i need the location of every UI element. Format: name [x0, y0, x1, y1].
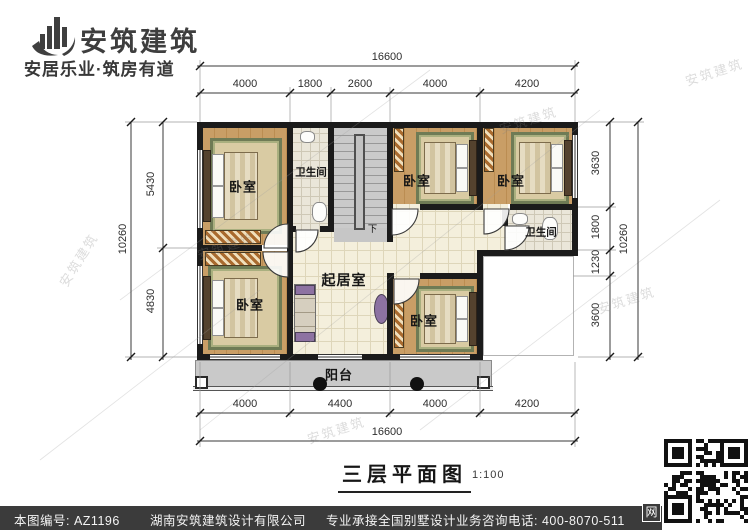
dim-top-seg-2: 1800 — [298, 78, 322, 90]
dim-bottom-seg-1: 4000 — [233, 398, 257, 410]
footer-company: 湖南安筑建筑设计有限公司 — [150, 510, 306, 529]
door-swing-arc — [392, 209, 418, 235]
dim-top-seg-4: 4000 — [423, 78, 447, 90]
dim-bottom-seg-3: 4000 — [423, 398, 447, 410]
qr-module — [708, 511, 712, 515]
qr-module — [696, 463, 700, 467]
qr-module — [732, 499, 736, 503]
door-swing-arc — [296, 230, 318, 252]
qr-module — [688, 487, 692, 491]
qr-module — [720, 519, 724, 523]
qr-module — [744, 463, 748, 467]
qr-module — [708, 519, 712, 523]
footer-phone: 咨询电话: 400-8070-511 — [482, 510, 625, 529]
dimension-and-door-overlay — [0, 0, 750, 530]
qr-module — [696, 519, 700, 523]
qr-module — [716, 511, 720, 515]
stair-down-label: 下 — [368, 221, 379, 235]
dim-left-seg-2: 4830 — [145, 271, 157, 331]
room-label-bathroom-1: 卫生间 — [295, 165, 327, 180]
dim-right-seg-3: 1230 — [590, 232, 602, 292]
dim-top-seg-5: 4200 — [515, 78, 539, 90]
qr-module — [744, 495, 748, 499]
footer-service: 专业承接全国别墅设计业务 — [326, 510, 482, 529]
room-label-bathroom-2: 卫生间 — [525, 225, 557, 240]
qr-code — [662, 436, 750, 530]
door-swing-arc — [264, 224, 288, 248]
qr-module — [680, 455, 684, 459]
drawing-scale: 1:100 — [472, 469, 505, 481]
qr-module — [744, 519, 748, 523]
qr-module — [680, 511, 684, 515]
room-label-bedroom-top-middle: 卧室 — [403, 171, 431, 190]
room-label-balcony: 阳台 — [325, 365, 353, 384]
dim-right-seg-1: 3630 — [590, 133, 602, 193]
dim-right-total: 10260 — [618, 209, 630, 269]
door-swing-arc — [394, 279, 419, 304]
qr-module — [736, 455, 740, 459]
room-label-bedroom-bottom-middle: 卧室 — [410, 311, 438, 330]
qr-module — [708, 451, 712, 455]
qr-module — [744, 511, 748, 515]
qr-module — [724, 475, 728, 479]
room-label-bedroom-top-left: 卧室 — [229, 177, 257, 196]
qr-module — [688, 463, 692, 467]
dim-bottom-total: 16600 — [372, 426, 403, 438]
drawing-title-text: 三层平面图 — [342, 464, 467, 486]
qr-module — [744, 487, 748, 491]
qr-module — [712, 463, 716, 467]
qr-module — [728, 503, 732, 507]
dim-bottom-seg-2: 4400 — [328, 398, 352, 410]
qr-module — [688, 519, 692, 523]
qr-module — [716, 491, 720, 495]
dim-left-seg-1: 5430 — [145, 154, 157, 214]
room-label-bedroom-top-right: 卧室 — [497, 171, 525, 190]
drawing-title: 三层平面图 — [338, 458, 471, 493]
qr-module — [724, 483, 728, 487]
drawing-sheet: 安筑建筑 安居乐业·筑房有道 卧室 卧室 卧室 卧室 卧室 卫生间 卫生间 起居… — [0, 0, 750, 530]
dim-top-total: 16600 — [372, 51, 403, 63]
door-swing-arc — [263, 252, 288, 277]
watermark-line — [420, 200, 720, 430]
qr-module — [704, 491, 708, 495]
watermark-line — [200, 110, 600, 430]
qr-module — [744, 479, 748, 483]
web-badge: 网 — [642, 503, 661, 522]
dim-left-total: 10260 — [117, 209, 129, 269]
room-label-bedroom-bottom-left: 卧室 — [236, 295, 264, 314]
dim-top-seg-3: 2600 — [348, 78, 372, 90]
dim-top-seg-1: 4000 — [233, 78, 257, 90]
qr-module — [688, 479, 692, 483]
room-label-living: 起居室 — [322, 270, 367, 290]
footer-bar: 本图编号: AZ1196 湖南安筑建筑设计有限公司 专业承接全国别墅设计业务 咨… — [0, 506, 750, 530]
footer-drawing-number: 本图编号: AZ1196 — [14, 510, 120, 529]
qr-module — [704, 463, 708, 467]
dim-bottom-seg-4: 4200 — [515, 398, 539, 410]
qr-module — [688, 471, 692, 475]
